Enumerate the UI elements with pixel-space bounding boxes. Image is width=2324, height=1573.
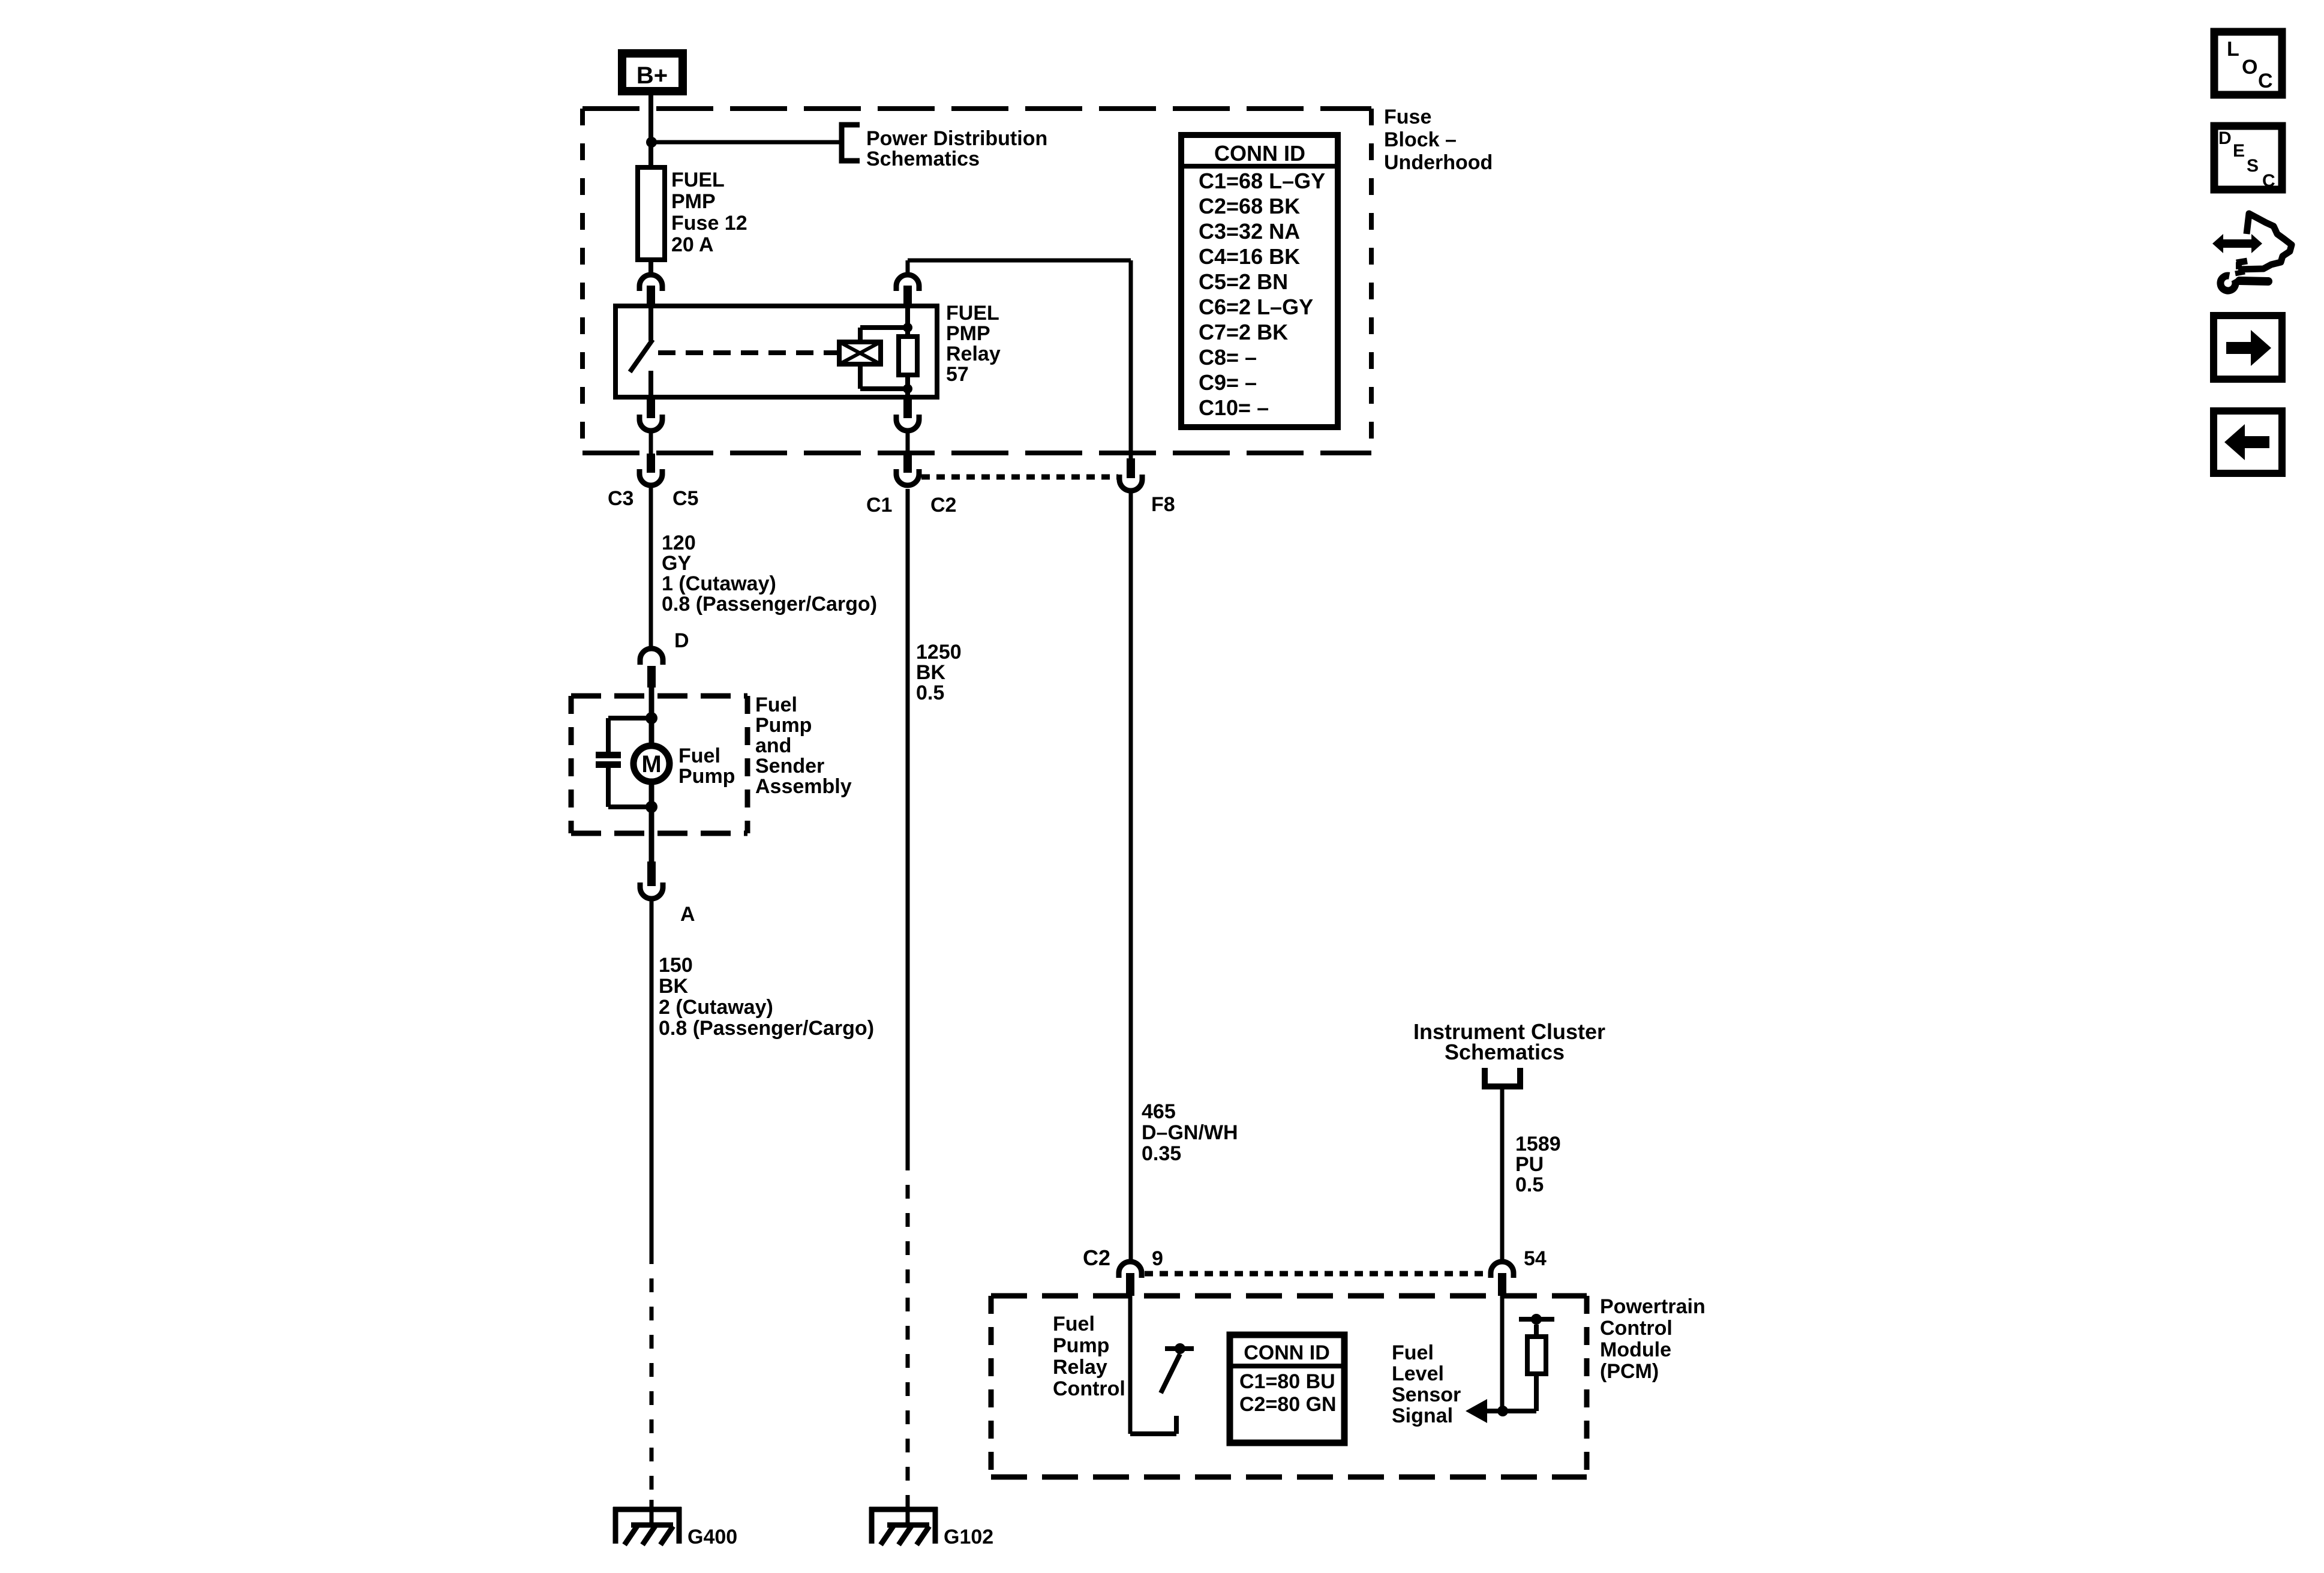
svg-text:C3: C3 <box>608 487 633 510</box>
svg-text:Module: Module <box>1600 1338 1671 1361</box>
svg-text:0.5: 0.5 <box>1515 1173 1544 1196</box>
svg-text:Schematics: Schematics <box>866 148 980 170</box>
svg-text:Fuel: Fuel <box>755 694 797 716</box>
svg-text:(PCM): (PCM) <box>1600 1360 1659 1383</box>
svg-text:Fuel: Fuel <box>1392 1341 1434 1364</box>
svg-text:Fuse: Fuse <box>1384 106 1431 128</box>
svg-text:120: 120 <box>662 532 696 554</box>
svg-text:CONN ID: CONN ID <box>1214 141 1305 166</box>
svg-text:Pump: Pump <box>678 765 735 788</box>
svg-text:C1=68 L–GY: C1=68 L–GY <box>1199 169 1325 193</box>
svg-text:Underhood: Underhood <box>1384 151 1493 174</box>
svg-text:C2=68 BK: C2=68 BK <box>1199 194 1300 218</box>
svg-text:0.8 (Passenger/Cargo): 0.8 (Passenger/Cargo) <box>659 1017 874 1040</box>
svg-text:Fuse 12: Fuse 12 <box>671 212 747 235</box>
svg-text:465: 465 <box>1142 1100 1176 1123</box>
svg-text:150: 150 <box>659 954 693 977</box>
svg-text:C4=16 BK: C4=16 BK <box>1199 244 1300 269</box>
svg-text:S: S <box>2247 156 2259 176</box>
svg-text:Sender: Sender <box>755 755 824 778</box>
svg-text:1250: 1250 <box>916 641 962 664</box>
svg-text:PMP: PMP <box>671 190 716 213</box>
svg-text:C1: C1 <box>866 494 892 517</box>
svg-text:C5: C5 <box>672 487 698 510</box>
svg-text:CONN ID: CONN ID <box>1244 1341 1330 1364</box>
svg-text:57: 57 <box>946 363 969 386</box>
svg-text:and: and <box>755 734 791 757</box>
svg-text:C: C <box>2258 70 2273 92</box>
svg-text:L: L <box>2227 38 2239 61</box>
svg-text:FUEL: FUEL <box>946 302 999 325</box>
svg-text:PMP: PMP <box>946 322 990 345</box>
svg-text:C5=2 BN: C5=2 BN <box>1199 269 1288 294</box>
svg-text:Schematics: Schematics <box>1445 1040 1565 1064</box>
svg-text:G400: G400 <box>687 1526 737 1548</box>
svg-text:C2=80 GN: C2=80 GN <box>1239 1393 1337 1416</box>
svg-text:54: 54 <box>1524 1247 1547 1270</box>
svg-text:A: A <box>680 903 695 926</box>
svg-text:1 (Cutaway): 1 (Cutaway) <box>662 572 776 595</box>
svg-text:Block –: Block – <box>1384 128 1457 151</box>
svg-text:E: E <box>2233 141 2245 161</box>
svg-text:D–GN/WH: D–GN/WH <box>1142 1121 1238 1144</box>
svg-text:Pump: Pump <box>1053 1334 1109 1357</box>
svg-text:Power Distribution: Power Distribution <box>866 127 1047 150</box>
svg-text:G102: G102 <box>944 1526 993 1548</box>
svg-text:20 A: 20 A <box>671 233 714 256</box>
svg-text:0.35: 0.35 <box>1142 1142 1181 1165</box>
svg-text:Powertrain: Powertrain <box>1600 1295 1706 1318</box>
svg-text:M: M <box>641 751 661 778</box>
svg-text:Control: Control <box>1053 1377 1125 1400</box>
svg-text:C: C <box>2262 171 2275 191</box>
svg-text:C1=80 BU: C1=80 BU <box>1239 1370 1335 1393</box>
svg-text:Level: Level <box>1392 1362 1444 1385</box>
svg-text:B+: B+ <box>636 62 668 89</box>
svg-text:PU: PU <box>1515 1153 1544 1176</box>
svg-text:O: O <box>2242 56 2257 79</box>
svg-text:GY: GY <box>662 552 691 575</box>
svg-text:Sensor: Sensor <box>1392 1383 1461 1406</box>
svg-text:BK: BK <box>916 661 946 684</box>
svg-text:9: 9 <box>1152 1247 1163 1270</box>
svg-text:C7=2 BK: C7=2 BK <box>1199 320 1288 344</box>
svg-text:FUEL: FUEL <box>671 169 725 191</box>
svg-text:Pump: Pump <box>755 714 812 737</box>
svg-text:Assembly: Assembly <box>755 775 852 798</box>
svg-text:Relay: Relay <box>946 343 1001 365</box>
svg-text:C10= –: C10= – <box>1199 395 1269 420</box>
svg-text:C2: C2 <box>930 494 956 517</box>
svg-text:C3=32 NA: C3=32 NA <box>1199 219 1300 244</box>
svg-text:C8= –: C8= – <box>1199 345 1257 370</box>
svg-text:Fuel: Fuel <box>678 745 720 767</box>
svg-text:0.5: 0.5 <box>916 682 944 704</box>
svg-text:C6=2 L–GY: C6=2 L–GY <box>1199 295 1313 319</box>
svg-text:C2: C2 <box>1083 1245 1110 1270</box>
svg-text:D: D <box>2218 128 2232 148</box>
svg-text:2 (Cutaway): 2 (Cutaway) <box>659 996 773 1019</box>
svg-text:Signal: Signal <box>1392 1404 1453 1427</box>
svg-text:Fuel: Fuel <box>1053 1313 1095 1335</box>
svg-text:0.8 (Passenger/Cargo): 0.8 (Passenger/Cargo) <box>662 593 877 616</box>
svg-text:1589: 1589 <box>1515 1133 1561 1155</box>
svg-text:Relay: Relay <box>1053 1356 1107 1379</box>
svg-text:BK: BK <box>659 975 689 998</box>
svg-text:Control: Control <box>1600 1317 1673 1340</box>
svg-text:D: D <box>674 629 689 652</box>
svg-text:F8: F8 <box>1151 493 1175 516</box>
svg-text:C9= –: C9= – <box>1199 370 1257 395</box>
